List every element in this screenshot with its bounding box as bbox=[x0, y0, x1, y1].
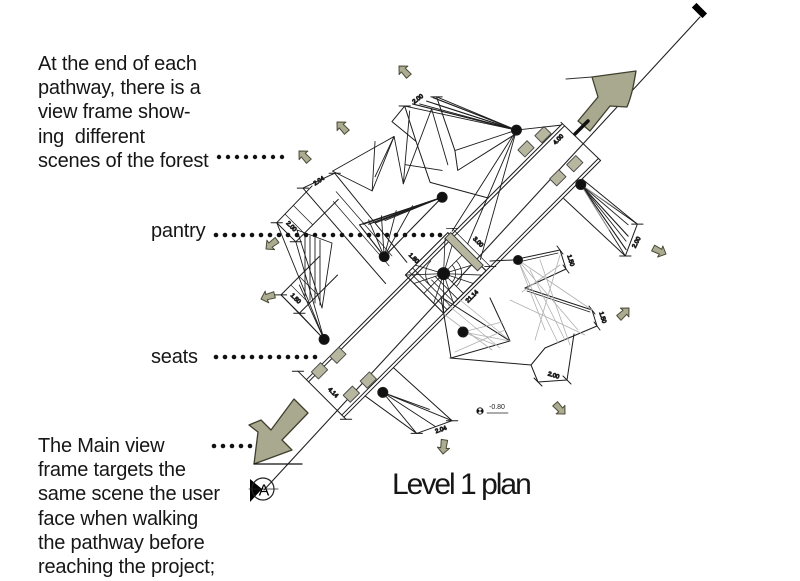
svg-text:3.00: 3.00 bbox=[471, 236, 484, 249]
svg-text:4.14: 4.14 bbox=[326, 387, 339, 400]
svg-text:1.80: 1.80 bbox=[407, 253, 420, 266]
svg-text:2.00: 2.00 bbox=[547, 371, 561, 381]
svg-text:2.04: 2.04 bbox=[435, 425, 449, 435]
svg-text:A: A bbox=[259, 483, 270, 500]
svg-text:1.50: 1.50 bbox=[565, 254, 575, 268]
svg-text:2.00: 2.00 bbox=[632, 236, 643, 250]
svg-text:2.00: 2.00 bbox=[285, 221, 298, 234]
svg-text:1.50: 1.50 bbox=[597, 311, 607, 325]
svg-text:2.00: 2.00 bbox=[412, 93, 425, 105]
svg-text:21.14: 21.14 bbox=[465, 289, 480, 304]
svg-text:1.50: 1.50 bbox=[289, 293, 302, 306]
svg-text:-0.80: -0.80 bbox=[489, 404, 505, 411]
svg-text:2.04: 2.04 bbox=[313, 176, 327, 188]
